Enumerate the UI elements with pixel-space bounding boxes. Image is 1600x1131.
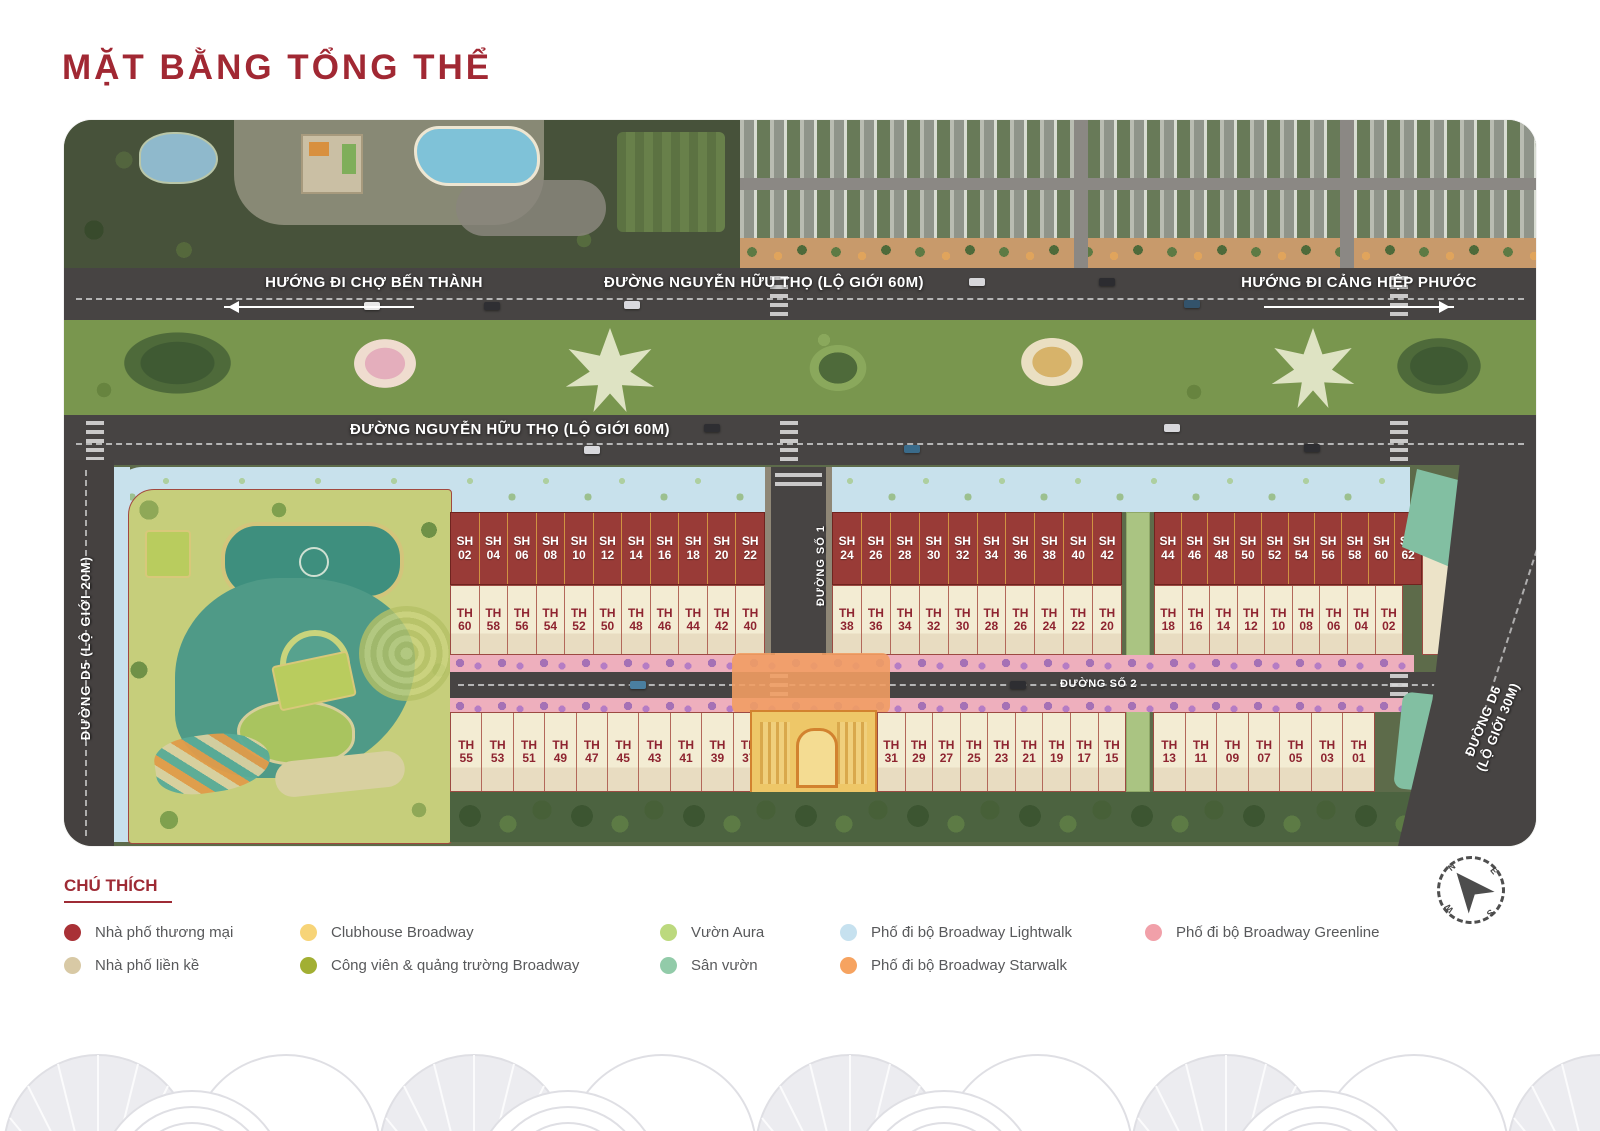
crosswalk xyxy=(775,473,822,486)
small-court xyxy=(145,530,191,578)
legend-label: Phố đi bộ Broadway Lightwalk xyxy=(871,924,1072,941)
legend-label: Vườn Aura xyxy=(691,924,764,941)
lot-cell: TH19 xyxy=(1043,713,1071,791)
road-nguyen-huu-tho-upper: HƯỚNG ĐI CHỢ BẾN THÀNH ĐƯỜNG NGUYỄN HỮU … xyxy=(64,268,1536,320)
clubhouse-broadway xyxy=(750,710,877,794)
crosswalk xyxy=(1390,419,1408,461)
lot-cell: SH10 xyxy=(565,513,594,584)
arrow-left-icon xyxy=(224,306,414,308)
site-map: HƯỚNG ĐI CHỢ BẾN THÀNH ĐƯỜNG NGUYỄN HỮU … xyxy=(64,120,1536,846)
lot-row-th-bottom2: TH31TH29TH27TH25TH23TH21TH19TH17TH15 xyxy=(877,712,1126,792)
car xyxy=(624,301,640,309)
lot-cell: TH58 xyxy=(480,586,509,654)
lot-cell: TH49 xyxy=(545,713,576,791)
legend-label: Phố đi bộ Broadway Starwalk xyxy=(871,957,1067,974)
tree-cluster xyxy=(120,330,235,396)
lot-cell: TH47 xyxy=(577,713,608,791)
lot-cell: TH52 xyxy=(565,586,594,654)
lot-cell: TH21 xyxy=(1016,713,1044,791)
lot-cell: TH41 xyxy=(671,713,702,791)
legend-item: Sân vườn xyxy=(660,957,840,974)
lot-cell: TH36 xyxy=(862,586,891,654)
road-so-1-label: ĐƯỜNG SỐ 1 xyxy=(815,525,827,606)
lot-cell: TH56 xyxy=(508,586,537,654)
lot-row-sh-group1: SH02SH04SH06SH08SH10SH12SH14SH16SH18SH20… xyxy=(450,512,765,585)
road-d5-label: ĐƯỜNG D5 (LỘ GIỚI 20M) xyxy=(78,556,93,740)
lot-cell: TH15 xyxy=(1099,713,1126,791)
lot-cell: TH27 xyxy=(933,713,961,791)
lot-cell: SH22 xyxy=(736,513,764,584)
lot-cell: TH28 xyxy=(978,586,1007,654)
lot-cell: TH50 xyxy=(594,586,623,654)
legend-item: Nhà phố thương mại xyxy=(64,924,300,941)
car xyxy=(1099,278,1115,286)
lot-cell: TH26 xyxy=(1006,586,1035,654)
legend-item: Nhà phố liền kề xyxy=(64,957,300,974)
lot-cell: SH36 xyxy=(1006,513,1035,584)
lot-cell: TH48 xyxy=(622,586,651,654)
lot-cell: TH09 xyxy=(1217,713,1249,791)
car xyxy=(1304,444,1320,452)
lot-cell: SH28 xyxy=(891,513,920,584)
direction-label-hiep-phuoc: HƯỚNG ĐI CẢNG HIỆP PHƯỚC xyxy=(1194,274,1524,291)
road-name-label: ĐƯỜNG NGUYỄN HỮU THỌ (LỘ GIỚI 60M) xyxy=(290,421,730,438)
lot-row-sh-group3: SH44SH46SH48SH50SH52SH54SH56SH58SH60SH62 xyxy=(1154,512,1422,585)
lot-cell: TH39 xyxy=(702,713,733,791)
lot-cell: SH50 xyxy=(1235,513,1262,584)
compass-icon: N E S W xyxy=(1423,842,1519,938)
legend-label: Clubhouse Broadway xyxy=(331,924,474,941)
lot-cell: SH34 xyxy=(978,513,1007,584)
lot-cell: TH44 xyxy=(679,586,708,654)
lot-cell: TH25 xyxy=(961,713,989,791)
lot-cell: TH60 xyxy=(451,586,480,654)
lot-cell: TH55 xyxy=(451,713,482,791)
amenity-pond xyxy=(139,132,218,184)
lot-cell: SH24 xyxy=(833,513,862,584)
art-deco-pattern xyxy=(0,1020,1600,1131)
street-trees-strip xyxy=(740,238,1536,268)
lot-cell: TH14 xyxy=(1210,586,1238,654)
legend-color-dot xyxy=(64,924,81,941)
legend-color-dot xyxy=(660,924,677,941)
lot-cell: TH07 xyxy=(1249,713,1281,791)
lot-cell: SH60 xyxy=(1369,513,1396,584)
flower-bed xyxy=(350,336,420,391)
clubhouse-wing xyxy=(837,722,867,784)
broadway-greenline-upper xyxy=(450,655,1414,672)
legend-color-dot xyxy=(300,924,317,941)
lot-cell: TH38 xyxy=(833,586,862,654)
arrow-right-icon xyxy=(1264,306,1454,308)
amenity-lawn xyxy=(617,132,725,232)
legend: Nhà phố thương mại Nhà phố liền kề Clubh… xyxy=(64,920,1379,977)
lot-cell: SH20 xyxy=(708,513,737,584)
lot-cell: TH34 xyxy=(891,586,920,654)
cross-street xyxy=(1074,120,1088,268)
lot-cell: TH32 xyxy=(920,586,949,654)
star-flower-bed xyxy=(1270,328,1356,408)
masterplan-page: MẶT BẰNG TỔNG THỂ xyxy=(0,0,1600,1131)
median-strip xyxy=(64,320,1536,415)
legend-color-dot xyxy=(1145,924,1162,941)
legend-color-dot xyxy=(660,957,677,974)
lot-cell: TH45 xyxy=(608,713,639,791)
lot-cell: TH54 xyxy=(537,586,566,654)
lot-cell: SH18 xyxy=(679,513,708,584)
lot-cell: SH52 xyxy=(1262,513,1289,584)
lot-cell: TH42 xyxy=(708,586,737,654)
trees-band xyxy=(450,792,1466,842)
lane-dashes xyxy=(76,298,1524,300)
road-d6-label: ĐƯỜNG D6 (LỘ GIỚI 30M) xyxy=(1448,649,1534,800)
crosswalk xyxy=(1390,674,1408,696)
lot-row-sh-group2: SH24SH26SH28SH30SH32SH34SH36SH38SH40SH42 xyxy=(832,512,1122,585)
legend-label: Phố đi bộ Broadway Greenline xyxy=(1176,924,1379,941)
park-broadway xyxy=(128,489,452,844)
amenity-building xyxy=(301,134,363,194)
tree-cluster xyxy=(1394,336,1484,396)
lot-cell: SH32 xyxy=(949,513,978,584)
legend-item: Công viên & quảng trường Broadway xyxy=(300,957,660,974)
lot-cell: TH23 xyxy=(988,713,1016,791)
lot-cell: SH44 xyxy=(1155,513,1182,584)
car xyxy=(484,302,500,310)
lot-cell: SH26 xyxy=(862,513,891,584)
development-block: SH02SH04SH06SH08SH10SH12SH14SH16SH18SH20… xyxy=(114,467,1466,842)
legend-label: Công viên & quảng trường Broadway xyxy=(331,957,579,974)
amphitheater xyxy=(359,606,452,701)
car xyxy=(630,681,646,689)
lot-cell: TH31 xyxy=(878,713,906,791)
road-name-label: ĐƯỜNG NGUYỄN HỮU THỌ (LỘ GIỚI 60M) xyxy=(484,274,1044,291)
car xyxy=(904,445,920,453)
legend-item: Phố đi bộ Broadway Lightwalk xyxy=(840,924,1145,941)
lot-cell: SH40 xyxy=(1064,513,1093,584)
lot-cell: TH16 xyxy=(1183,586,1211,654)
tree-cluster xyxy=(806,342,870,394)
lot-cell: TH51 xyxy=(514,713,545,791)
lot-row-th-bottom1: TH55TH53TH51TH49TH47TH45TH43TH41TH39TH37 xyxy=(450,712,765,792)
amenity-driveway xyxy=(456,180,606,236)
lot-cell: TH01 xyxy=(1343,713,1374,791)
lot-cell: TH11 xyxy=(1186,713,1218,791)
lane-dashes xyxy=(458,684,1458,686)
car xyxy=(1164,424,1180,432)
lot-cell: TH12 xyxy=(1238,586,1266,654)
legend-color-dot xyxy=(840,924,857,941)
legend-title: CHÚ THÍCH xyxy=(64,876,172,903)
crosswalk xyxy=(86,419,104,461)
lot-cell: SH14 xyxy=(622,513,651,584)
existing-houses-aerial xyxy=(740,120,1536,268)
lot-cell: TH40 xyxy=(736,586,764,654)
lot-cell: SH48 xyxy=(1208,513,1235,584)
lot-cell: SH42 xyxy=(1093,513,1121,584)
lot-cell: SH16 xyxy=(651,513,680,584)
lot-row-th-group2: TH38TH36TH34TH32TH30TH28TH26TH24TH22TH20 xyxy=(832,585,1122,655)
road-so-2: ĐƯỜNG SỐ 2 xyxy=(450,672,1466,698)
flower-bed xyxy=(1016,334,1088,390)
legend-item: Vườn Aura xyxy=(660,924,840,941)
lot-cell: TH30 xyxy=(949,586,978,654)
lot-cell: SH06 xyxy=(508,513,537,584)
house-alley xyxy=(740,178,1536,190)
lot-cell: TH18 xyxy=(1155,586,1183,654)
amenity-pool xyxy=(414,126,540,186)
lot-cell: TH17 xyxy=(1071,713,1099,791)
lot-cell: SH58 xyxy=(1342,513,1369,584)
lot-cell: TH20 xyxy=(1093,586,1121,654)
legend-item: Phố đi bộ Broadway Starwalk xyxy=(840,957,1145,974)
lot-cell: TH08 xyxy=(1293,586,1321,654)
cross-street xyxy=(1340,120,1354,268)
lot-cell: SH04 xyxy=(480,513,509,584)
lot-cell: TH06 xyxy=(1320,586,1348,654)
lot-cell: TH04 xyxy=(1348,586,1376,654)
legend-label: Sân vườn xyxy=(691,957,758,974)
legend-color-dot xyxy=(64,957,81,974)
amenity-area-aerial xyxy=(64,120,740,268)
lot-cell: TH03 xyxy=(1312,713,1344,791)
lot-cell: SH12 xyxy=(594,513,623,584)
garden-walkway xyxy=(1126,512,1150,792)
lot-row-th-bottom3: TH13TH11TH09TH07TH05TH03TH01 xyxy=(1153,712,1375,792)
lot-cell: TH22 xyxy=(1064,586,1093,654)
lot-cell: SH54 xyxy=(1289,513,1316,584)
car xyxy=(1010,681,1026,689)
lot-cell: TH13 xyxy=(1154,713,1186,791)
lot-cell: SH30 xyxy=(920,513,949,584)
legend-label: Nhà phố liền kề xyxy=(95,957,199,974)
broadway-greenline-lower xyxy=(450,698,1414,712)
car xyxy=(584,446,600,454)
lot-cell: SH38 xyxy=(1035,513,1064,584)
lot-cell: SH46 xyxy=(1182,513,1209,584)
legend-color-dot xyxy=(300,957,317,974)
road-nguyen-huu-tho-lower: ĐƯỜNG NGUYỄN HỮU THỌ (LỘ GIỚI 60M) xyxy=(64,415,1536,465)
lot-row-th-group1: TH60TH58TH56TH54TH52TH50TH48TH46TH44TH42… xyxy=(450,585,765,655)
lot-cell: TH02 xyxy=(1376,586,1403,654)
lot-row-th-group3: TH18TH16TH14TH12TH10TH08TH06TH04TH02 xyxy=(1154,585,1403,655)
lot-cell: TH05 xyxy=(1280,713,1312,791)
legend-color-dot xyxy=(840,957,857,974)
page-title: MẶT BẰNG TỔNG THỂ xyxy=(62,48,492,88)
lot-cell: TH46 xyxy=(651,586,680,654)
lot-cell: SH02 xyxy=(451,513,480,584)
lot-cell: TH10 xyxy=(1265,586,1293,654)
lot-cell: TH24 xyxy=(1035,586,1064,654)
road-d5: ĐƯỜNG D5 (LỘ GIỚI 20M) xyxy=(64,460,114,846)
legend-item: Phố đi bộ Broadway Greenline xyxy=(1145,924,1379,941)
lot-cell: TH43 xyxy=(639,713,670,791)
house-roofs-row xyxy=(740,120,1536,178)
lot-cell: TH29 xyxy=(906,713,934,791)
lot-cell: SH56 xyxy=(1315,513,1342,584)
star-flower-bed xyxy=(564,328,656,412)
clubhouse-arch xyxy=(796,728,838,788)
legend-label: Nhà phố thương mại xyxy=(95,924,233,941)
broadway-starwalk xyxy=(732,653,890,714)
lot-cell: TH53 xyxy=(482,713,513,791)
legend-item: Clubhouse Broadway xyxy=(300,924,660,941)
house-roofs-row xyxy=(740,190,1536,238)
clubhouse-wing xyxy=(760,722,790,784)
lot-cell: SH08 xyxy=(537,513,566,584)
road-so-2-label: ĐƯỜNG SỐ 2 xyxy=(1060,678,1137,690)
crosswalk xyxy=(780,419,798,461)
car xyxy=(1184,300,1200,308)
